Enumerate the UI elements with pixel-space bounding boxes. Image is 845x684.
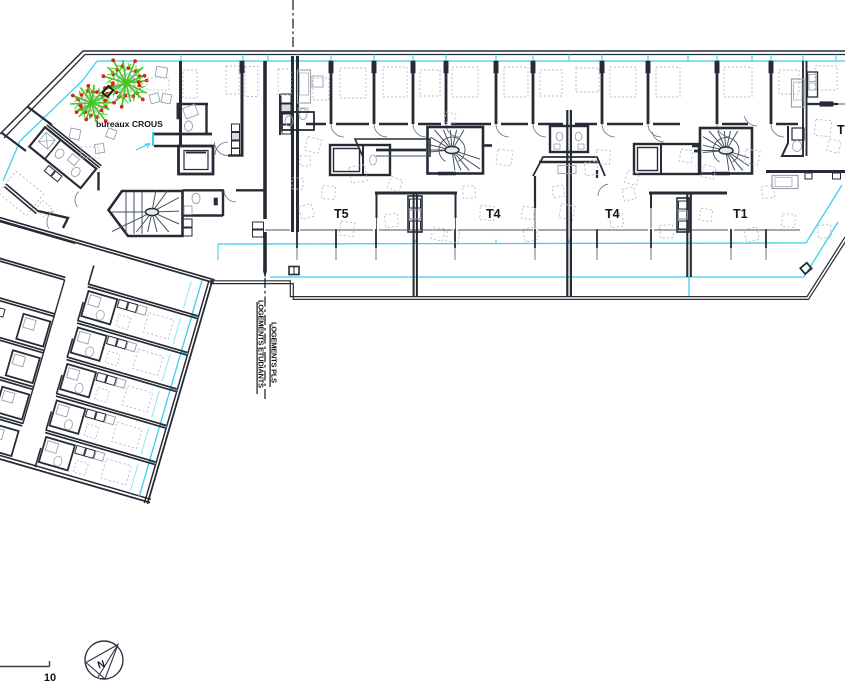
svg-text:T3: T3 [837,123,845,137]
svg-text:T1: T1 [733,207,748,221]
svg-text:LOGEMENTS ETUDIANTS: LOGEMENTS ETUDIANTS [257,300,266,388]
svg-text:T4: T4 [486,207,501,221]
svg-text:T5: T5 [334,207,349,221]
svg-text:10: 10 [44,672,56,684]
svg-text:LOGEMENTS PLS: LOGEMENTS PLS [270,322,279,383]
svg-text:bureaux CROUS: bureaux CROUS [96,119,163,129]
svg-text:T4: T4 [605,207,620,221]
